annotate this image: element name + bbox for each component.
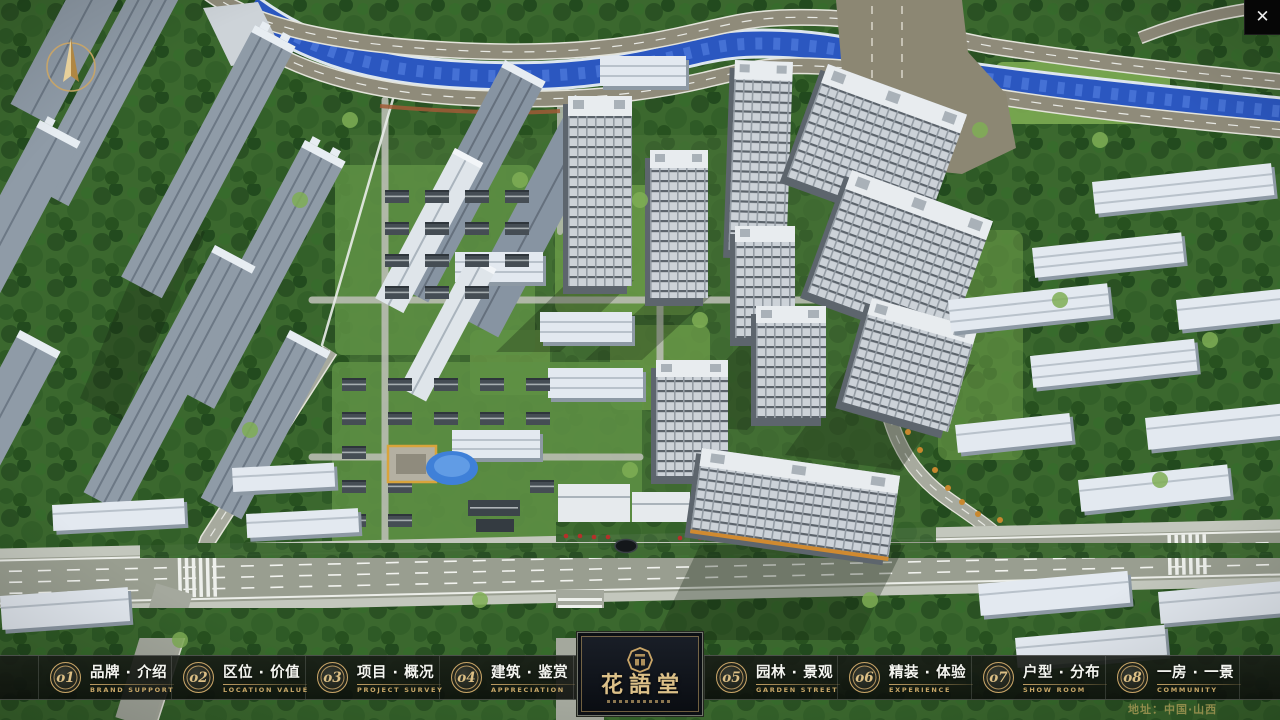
item-text: 一房 · 一景 COMMUNITY <box>1157 661 1241 694</box>
item-number-badge: o6 <box>849 662 880 693</box>
item-number: o6 <box>855 670 873 686</box>
nav-group-left: o1 品牌 · 介绍 BRAND SUPPORT o2 区位 · 价值 LOCA… <box>38 656 574 699</box>
item-number: o8 <box>1123 670 1141 686</box>
item-text: 户型 · 分布 SHOW ROOM <box>1023 661 1107 694</box>
item-divider-rule <box>90 684 174 685</box>
item-label-en: COMMUNITY <box>1157 686 1241 694</box>
address-text: 地址：中国·山西 <box>1128 701 1217 717</box>
item-text: 项目 · 概况 PROJECT SURVEY <box>357 661 441 694</box>
item-label-zh: 园林 · 景观 <box>756 661 840 682</box>
nav-item-appreciation[interactable]: o4 建筑 · 鉴赏 APPRECIATION <box>440 656 574 699</box>
item-number: o7 <box>989 670 1007 686</box>
item-number-badge: o7 <box>983 662 1014 693</box>
item-label-zh: 项目 · 概况 <box>357 661 441 682</box>
nav-item-experience[interactable]: o6 精装 · 体验 EXPERIENCE <box>838 656 972 699</box>
item-text: 建筑 · 鉴赏 APPRECIATION <box>491 661 575 694</box>
item-divider-rule <box>889 684 973 685</box>
item-number: o4 <box>457 670 475 686</box>
item-number-badge: o5 <box>716 662 747 693</box>
item-label-zh: 区位 · 价值 <box>223 661 307 682</box>
item-label-en: BRAND SUPPORT <box>90 686 174 694</box>
logo-panel[interactable]: 花語堂 <box>577 632 703 716</box>
nav-item-brand-support[interactable]: o1 品牌 · 介绍 BRAND SUPPORT <box>38 656 172 699</box>
close-button[interactable]: ✕ <box>1244 0 1280 35</box>
project-logo-title: 花語堂 <box>595 673 685 698</box>
item-text: 品牌 · 介绍 BRAND SUPPORT <box>90 661 174 694</box>
close-icon: ✕ <box>1255 7 1269 27</box>
logo-caption-line <box>607 700 673 703</box>
seal-emblem-icon <box>627 647 653 673</box>
item-label-zh: 品牌 · 介绍 <box>90 661 174 682</box>
item-number: o3 <box>323 670 341 686</box>
item-text: 园林 · 景观 GARDEN STREET <box>756 661 840 694</box>
item-text: 区位 · 价值 LOCATION VALUE <box>223 661 307 694</box>
compass-icon <box>36 30 106 100</box>
item-text: 精装 · 体验 EXPERIENCE <box>889 661 973 694</box>
nav-item-community[interactable]: o8 一房 · 一景 COMMUNITY <box>1106 656 1240 699</box>
vignette <box>0 0 1280 720</box>
item-label-en: PROJECT SURVEY <box>357 686 441 694</box>
nav-group-right: o5 园林 · 景观 GARDEN STREET o6 精装 · 体验 EXPE… <box>704 656 1240 699</box>
item-label-zh: 户型 · 分布 <box>1023 661 1107 682</box>
item-divider-rule <box>223 684 307 685</box>
item-number-badge: o2 <box>183 662 214 693</box>
nav-item-show-room[interactable]: o7 户型 · 分布 SHOW ROOM <box>972 656 1106 699</box>
item-number-badge: o3 <box>317 662 348 693</box>
item-divider-rule <box>491 684 575 685</box>
item-label-zh: 一房 · 一景 <box>1157 661 1241 682</box>
item-divider-rule <box>357 684 441 685</box>
item-divider-rule <box>1157 684 1241 685</box>
item-number: o1 <box>56 670 74 686</box>
item-label-en: SHOW ROOM <box>1023 686 1107 694</box>
nav-item-project-survey[interactable]: o3 项目 · 概况 PROJECT SURVEY <box>306 656 440 699</box>
app-window: ✕ o1 品牌 · 介绍 BRAND SUPPORT o2 区位 · 价值 LO… <box>0 0 1280 720</box>
item-label-en: APPRECIATION <box>491 686 575 694</box>
item-number-badge: o1 <box>50 662 81 693</box>
item-label-en: GARDEN STREET <box>756 686 840 694</box>
item-number: o5 <box>722 670 740 686</box>
item-divider-rule <box>756 684 840 685</box>
item-number-badge: o4 <box>451 662 482 693</box>
item-label-zh: 建筑 · 鉴赏 <box>491 661 575 682</box>
item-number: o2 <box>189 670 207 686</box>
item-number-badge: o8 <box>1117 662 1148 693</box>
nav-item-garden-street[interactable]: o5 园林 · 景观 GARDEN STREET <box>704 656 838 699</box>
item-label-en: LOCATION VALUE <box>223 686 307 694</box>
item-label-en: EXPERIENCE <box>889 686 973 694</box>
item-label-zh: 精装 · 体验 <box>889 661 973 682</box>
item-divider-rule <box>1023 684 1107 685</box>
masterplan-render <box>0 0 1280 720</box>
nav-item-location-value[interactable]: o2 区位 · 价值 LOCATION VALUE <box>172 656 306 699</box>
